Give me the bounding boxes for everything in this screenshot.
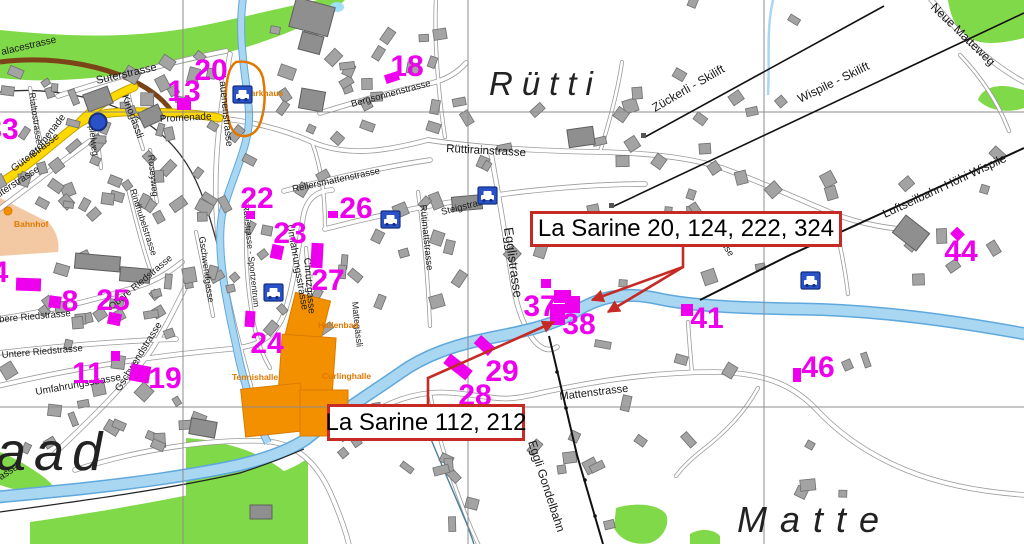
map-label: Untere Riedstrasse — [1, 343, 83, 361]
map-label: Hallenbad — [318, 320, 359, 330]
parkhaus-icon — [478, 187, 497, 204]
house-number-label: 23 — [273, 217, 306, 250]
map-label: Rüttirainstrasse — [446, 143, 526, 159]
map-label: Zückerli - Skilift — [650, 61, 728, 114]
house-number-label: 19 — [148, 362, 181, 395]
poi-circle-icon — [90, 114, 107, 131]
house-number-label: 38 — [562, 308, 595, 341]
map-label: Wispile - Skilift — [795, 59, 872, 106]
annotation-text: La Sarine 20, 124, 222, 324 — [538, 215, 834, 243]
map-label: Matte — [737, 499, 892, 540]
bahnhof-dot — [4, 207, 12, 215]
map-canvas: alacestrasseSuterstrassePromenadePromena… — [0, 0, 1024, 544]
annotation-box-la-sarine-west: La Sarine 112, 212 — [327, 404, 525, 441]
ski-lift-lines — [549, 6, 1024, 544]
map-label: Obere Riedstrasse — [0, 308, 71, 326]
house-number-label: 11 — [72, 357, 104, 390]
parkhaus-icon — [233, 86, 252, 103]
annotation-text: La Sarine 112, 212 — [325, 409, 526, 437]
map-label: Curlinghalle — [322, 371, 371, 381]
house-number-label: 33 — [0, 113, 19, 146]
house-number-label: 25 — [96, 284, 129, 317]
house-number-label: 41 — [690, 302, 723, 335]
map-label: Tennishalle — [232, 372, 278, 382]
house-number-label: 13 — [167, 75, 200, 108]
house-number-label: 44 — [944, 235, 978, 268]
house-number-label: 26 — [339, 192, 372, 225]
map-label: Egglistrasse — [501, 226, 526, 298]
map-label: Roseyweg — [146, 154, 160, 197]
house-number-label: 4 — [0, 256, 9, 289]
house-number-label: 18 — [390, 50, 423, 83]
map-screenshot: alacestrasseSuterstrassePromenadePromena… — [0, 0, 1024, 544]
house-number-label: 37 — [523, 290, 556, 323]
map-label: Rialtostrasse — [27, 92, 44, 145]
map-label: Rellersmattenstrasse — [291, 166, 381, 195]
annotation-box-la-sarine-east: La Sarine 20, 124, 222, 324 — [530, 211, 842, 247]
parkhaus-icon — [801, 272, 820, 289]
house-number-label: 8 — [62, 285, 79, 318]
house-number-label: 22 — [240, 182, 273, 215]
map-label: Promenade — [160, 111, 213, 125]
map-label: Eggli Gondelbahn — [525, 439, 568, 534]
house-number-label: 24 — [250, 327, 284, 360]
house-number-label: 27 — [311, 264, 344, 297]
map-label: Rütti — [489, 65, 602, 102]
map-labels: alacestrasseSuterstrassePromenadePromena… — [0, 0, 1009, 540]
parkhaus-icon — [264, 284, 283, 301]
parkhaus-icon — [381, 211, 400, 228]
house-number-label: 46 — [801, 351, 834, 384]
map-label: aad — [0, 422, 110, 482]
map-label: Bahnhof — [14, 219, 49, 229]
map-label: Rütimattstrasse — [417, 204, 435, 271]
